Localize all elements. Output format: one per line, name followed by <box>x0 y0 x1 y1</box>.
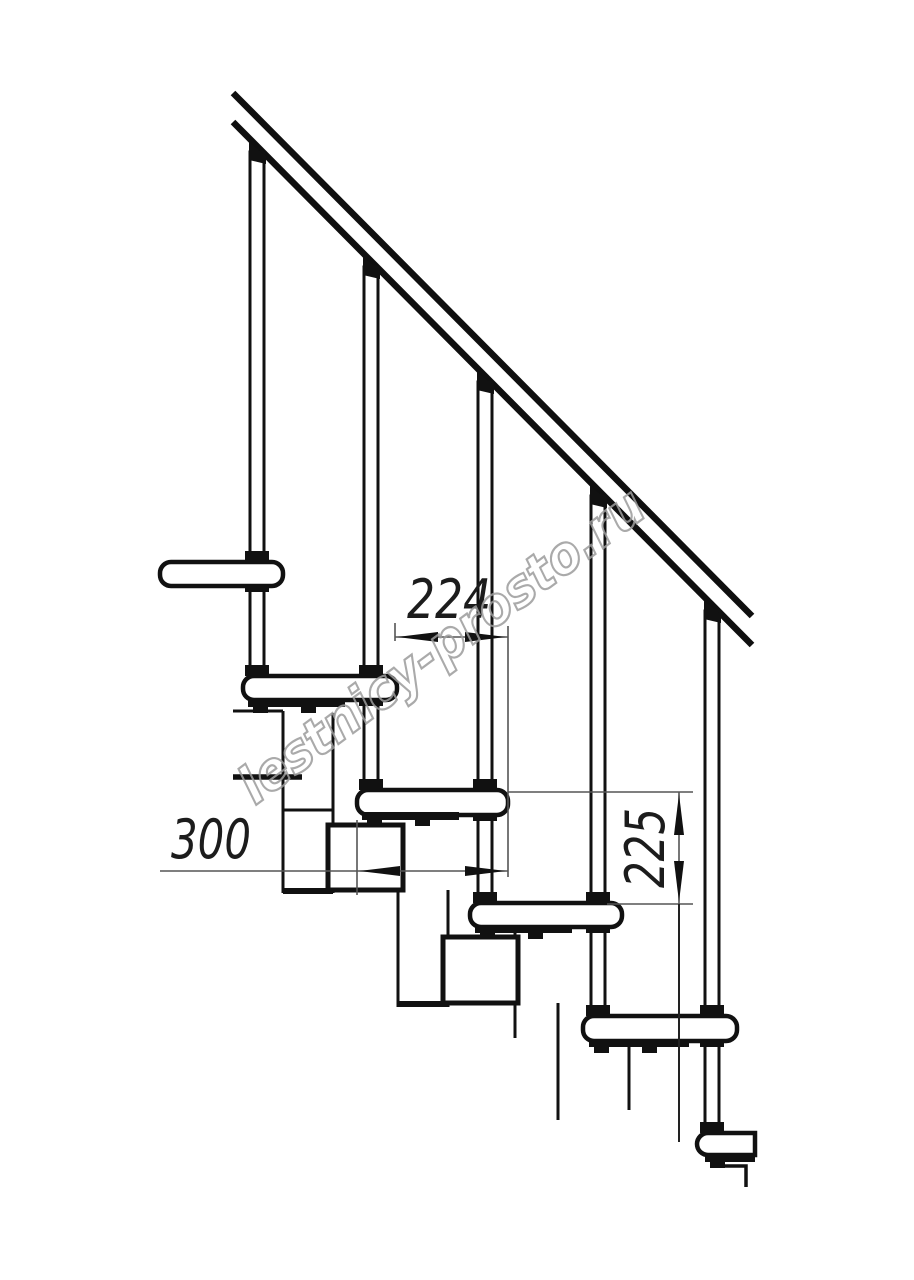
bracket-nub <box>253 707 268 713</box>
collar <box>245 665 269 676</box>
bracket-nub <box>415 820 430 826</box>
bracket-nub <box>642 1047 657 1053</box>
bracket-nub <box>367 820 382 826</box>
collar <box>359 779 383 790</box>
under-collar <box>473 813 497 821</box>
under-collar <box>700 1039 724 1047</box>
bracket-bar <box>362 812 459 820</box>
bracket-bar <box>475 925 572 933</box>
bracket-nub <box>528 933 543 939</box>
under-collar <box>245 584 269 592</box>
bracket-nub <box>710 1162 725 1168</box>
bracket-bar <box>589 1039 689 1047</box>
baluster-5 <box>705 611 719 1133</box>
bracket-bar <box>705 1154 755 1162</box>
baluster-4 <box>591 496 605 1016</box>
module-box-2 <box>328 825 403 890</box>
dimension-label-300: 300 <box>171 808 251 871</box>
baluster-1 <box>250 152 264 676</box>
staircase-drawing: 224 300 225 lestnicy-prosto.ru <box>0 0 914 1280</box>
dimension-label-225: 225 <box>614 808 677 888</box>
module6-step-line <box>710 1166 746 1187</box>
collar <box>700 1122 724 1133</box>
tread-5 <box>583 1016 737 1041</box>
tread-1 <box>160 562 283 586</box>
collar <box>586 892 610 903</box>
tread-3 <box>357 790 508 815</box>
module-box-3 <box>443 937 518 1003</box>
collar <box>245 551 269 562</box>
tread-6-clipped <box>697 1133 755 1155</box>
bracket-nub <box>594 1047 609 1053</box>
collar <box>586 1005 610 1016</box>
drawing-canvas: 224 300 225 lestnicy-prosto.ru <box>0 0 914 1280</box>
under-collar <box>586 925 610 933</box>
tread-4 <box>470 903 622 927</box>
bracket-nub <box>480 933 495 939</box>
collar <box>700 1005 724 1016</box>
collar <box>473 892 497 903</box>
collar <box>473 779 497 790</box>
